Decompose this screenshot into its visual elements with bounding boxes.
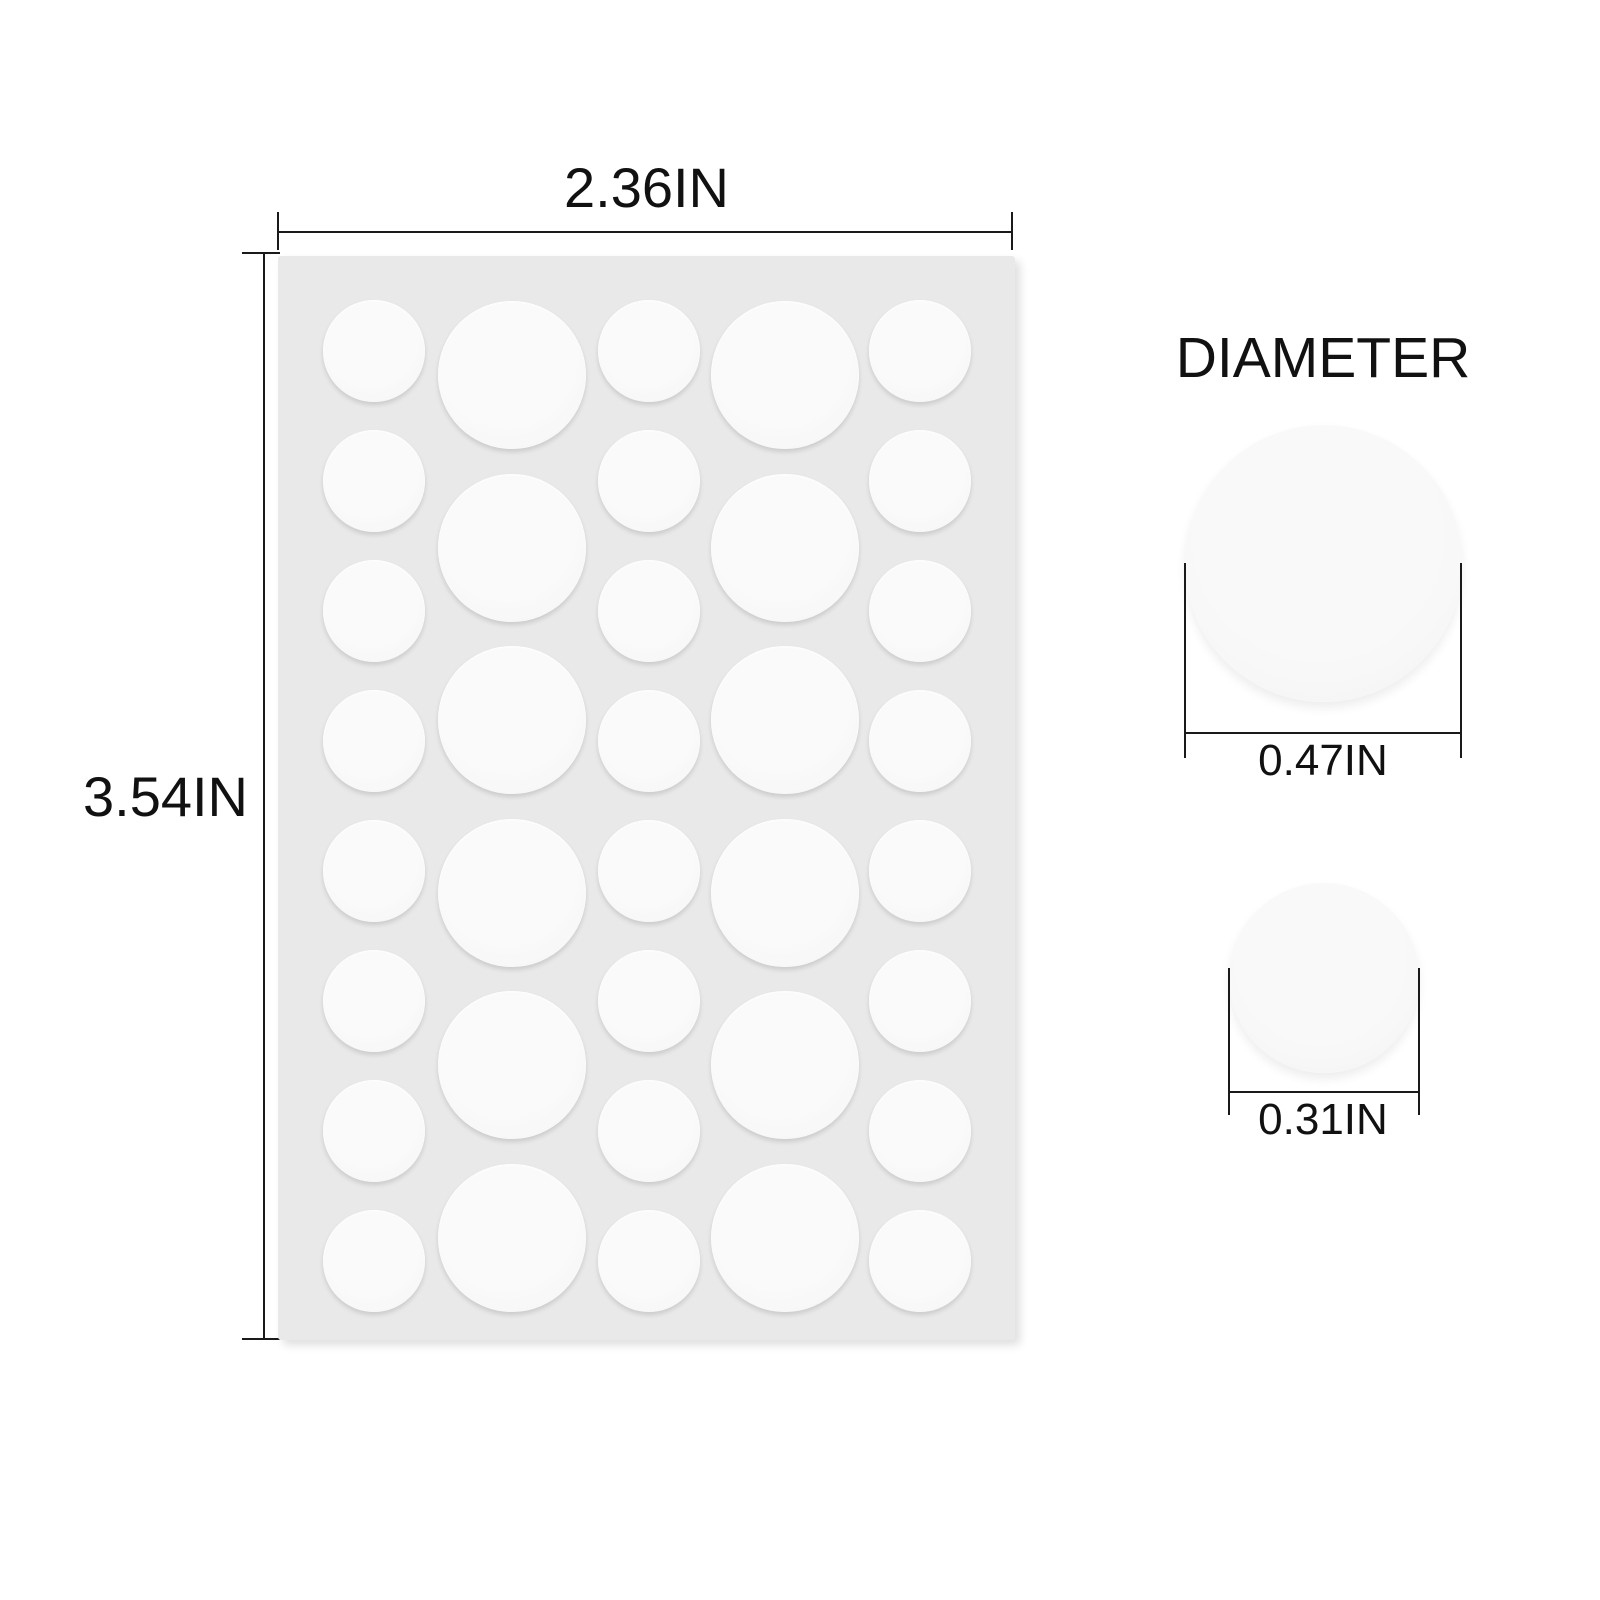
width-dimension-line — [278, 231, 1013, 233]
sticker-dot-large — [438, 991, 586, 1139]
sticker-dot-small — [598, 690, 700, 792]
sticker-dot-small — [323, 690, 425, 792]
sticker-dot-small — [869, 950, 971, 1052]
sticker-dot-small — [869, 690, 971, 792]
sticker-dot-large — [438, 1164, 586, 1312]
height-dimension-label: 3.54IN — [30, 769, 248, 825]
large-extension-line-right — [1460, 563, 1462, 758]
sticker-dot-large — [711, 646, 859, 794]
height-dimension-tick-top — [242, 252, 280, 254]
demo-circle-large — [1185, 425, 1462, 702]
sticker-dot-small — [869, 430, 971, 532]
sticker-dot-large — [438, 646, 586, 794]
width-dimension-tick-left — [277, 212, 279, 250]
sticker-dot-small — [869, 560, 971, 662]
large-dimension-line — [1184, 732, 1462, 734]
sticker-dot-large — [711, 819, 859, 967]
sticker-dot-large — [438, 474, 586, 622]
sticker-dot-small — [323, 820, 425, 922]
sticker-dot-small — [323, 1210, 425, 1312]
sticker-dot-large — [711, 301, 859, 449]
sticker-dot-small — [869, 1210, 971, 1312]
product-dimension-diagram: 2.36IN 3.54IN DIAMETER 0.47IN 0.31IN — [0, 0, 1600, 1600]
sticker-dot-small — [598, 1080, 700, 1182]
sticker-dot-small — [869, 820, 971, 922]
sticker-dot-large — [438, 819, 586, 967]
sticker-dot-large — [711, 991, 859, 1139]
sticker-dot-small — [323, 300, 425, 402]
width-dimension-label: 2.36IN — [278, 160, 1015, 216]
sticker-dot-small — [598, 430, 700, 532]
height-dimension-tick-bottom — [242, 1338, 280, 1340]
sticker-dot-small — [598, 950, 700, 1052]
sticker-dot-small — [323, 1080, 425, 1182]
large-diameter-label: 0.47IN — [1173, 739, 1473, 783]
small-diameter-label: 0.31IN — [1173, 1098, 1473, 1142]
sticker-dot-large — [711, 1164, 859, 1312]
width-dimension-tick-right — [1011, 212, 1013, 250]
sticker-dot-large — [438, 301, 586, 449]
sticker-sheet — [278, 256, 1015, 1340]
sticker-dot-small — [323, 950, 425, 1052]
sticker-dot-small — [323, 560, 425, 662]
sticker-dot-small — [323, 430, 425, 532]
small-dimension-line — [1228, 1091, 1420, 1093]
sticker-dot-small — [598, 820, 700, 922]
sticker-dot-small — [869, 1080, 971, 1182]
sticker-dot-large — [711, 474, 859, 622]
sticker-dot-small — [598, 1210, 700, 1312]
large-extension-line-left — [1184, 563, 1186, 758]
sticker-dot-small — [869, 300, 971, 402]
sticker-dot-small — [598, 560, 700, 662]
sticker-dot-small — [598, 300, 700, 402]
diameter-title: DIAMETER — [1123, 330, 1523, 387]
demo-circle-small — [1229, 883, 1419, 1073]
height-dimension-line — [263, 253, 265, 1340]
